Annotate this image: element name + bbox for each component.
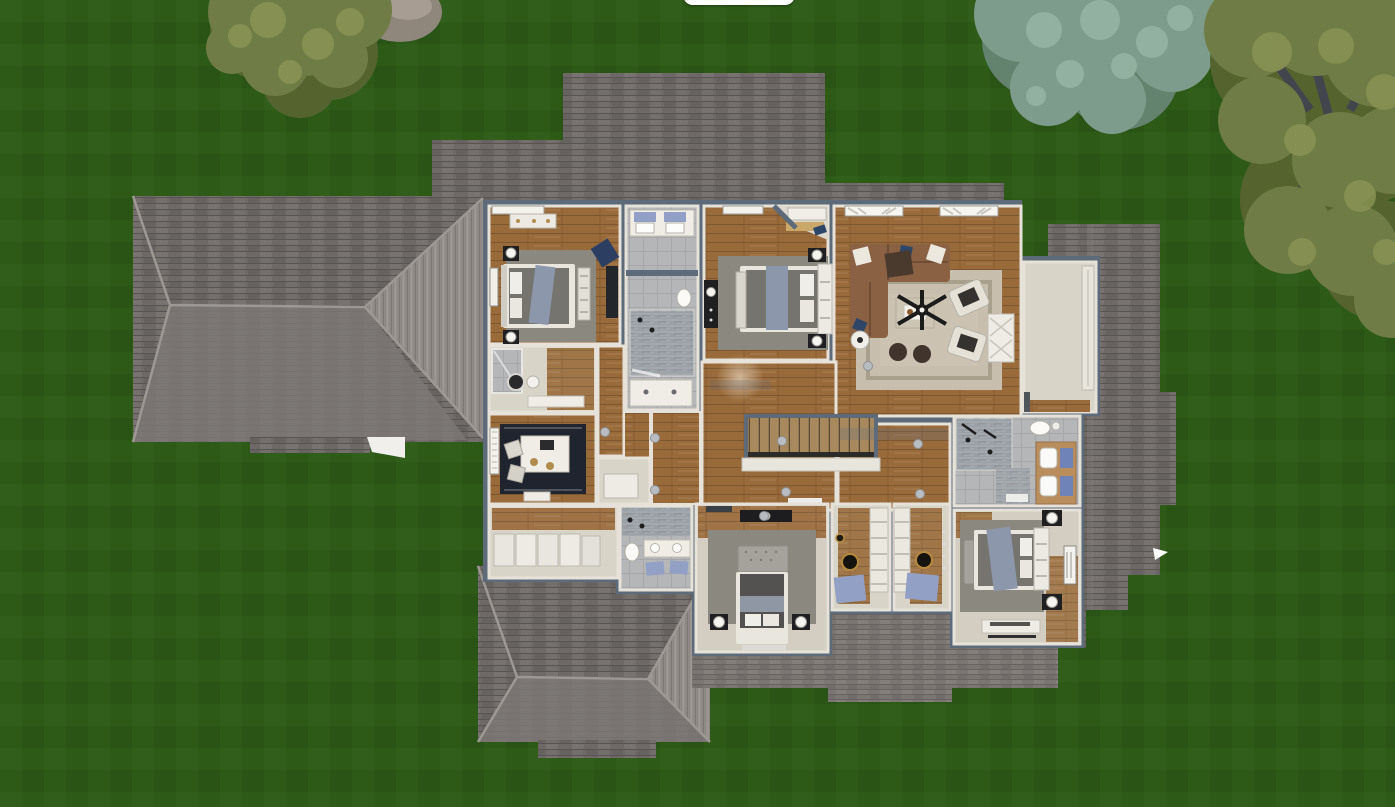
room-closet-b[interactable] bbox=[894, 504, 950, 610]
toilet[interactable] bbox=[677, 289, 691, 307]
ceiling-light bbox=[914, 440, 923, 449]
garage-roof-bump bbox=[538, 740, 656, 758]
throw-blanket bbox=[766, 266, 788, 330]
wall-art[interactable] bbox=[490, 268, 498, 306]
window-blinds bbox=[723, 206, 763, 214]
ceiling-light bbox=[778, 437, 787, 446]
hall-nook[interactable] bbox=[624, 412, 650, 458]
second-vanity[interactable] bbox=[630, 380, 692, 406]
room-living[interactable] bbox=[834, 206, 1021, 416]
dark-lid-toilet[interactable] bbox=[508, 374, 524, 390]
vanity[interactable] bbox=[528, 396, 584, 407]
storage-headboard bbox=[1034, 528, 1049, 590]
blue-towel bbox=[1060, 476, 1073, 496]
toilet[interactable] bbox=[1030, 421, 1050, 435]
brass-lamp bbox=[530, 458, 538, 466]
pillow bbox=[510, 298, 522, 318]
sink bbox=[1040, 476, 1057, 496]
brass-lamp bbox=[546, 462, 554, 470]
ceiling-light bbox=[916, 490, 925, 499]
room-bedroom-3[interactable] bbox=[696, 504, 828, 652]
room-office[interactable] bbox=[489, 414, 596, 504]
sink bbox=[673, 544, 682, 553]
desk[interactable] bbox=[606, 266, 618, 318]
shower[interactable] bbox=[622, 508, 690, 536]
ball-lamp bbox=[707, 288, 716, 297]
blue-bath-mat bbox=[646, 561, 665, 576]
pillow bbox=[1020, 538, 1032, 556]
stair-shadow bbox=[748, 452, 874, 457]
room-bathroom-2[interactable] bbox=[954, 416, 1080, 506]
blue-towel bbox=[664, 212, 686, 222]
white-runner bbox=[742, 645, 786, 650]
garage-hip-roof[interactable] bbox=[478, 566, 710, 758]
ottoman[interactable] bbox=[913, 345, 931, 363]
door-opening bbox=[706, 506, 732, 512]
sink bbox=[666, 223, 684, 233]
room-laundry[interactable] bbox=[489, 506, 618, 578]
front-door[interactable] bbox=[1024, 392, 1030, 412]
flat-roof-under-bedroom-3[interactable] bbox=[692, 652, 832, 688]
door-mat bbox=[1006, 494, 1028, 502]
room-entry[interactable] bbox=[1024, 262, 1096, 412]
dresser[interactable] bbox=[982, 620, 1040, 633]
left-hip-roof[interactable] bbox=[133, 196, 483, 458]
headboard bbox=[740, 632, 784, 641]
vase bbox=[1052, 422, 1060, 430]
top-roof-main[interactable] bbox=[563, 73, 825, 200]
ball-lamp bbox=[796, 617, 807, 628]
flat-roof-under-bedroom-4[interactable] bbox=[950, 644, 1058, 688]
ball-lamp bbox=[506, 248, 516, 258]
scene-canvas[interactable] bbox=[0, 0, 1395, 807]
left-roof-bump bbox=[250, 437, 370, 453]
monitor bbox=[540, 440, 554, 450]
console-table[interactable] bbox=[988, 314, 1014, 362]
tufted-bench bbox=[964, 540, 974, 584]
sink bbox=[636, 223, 654, 233]
storage-headboard bbox=[818, 264, 832, 334]
bed[interactable] bbox=[736, 546, 788, 644]
floor-light-glow bbox=[716, 354, 764, 402]
wall-art[interactable] bbox=[1064, 546, 1076, 584]
chair[interactable] bbox=[507, 465, 525, 483]
headboard bbox=[501, 265, 507, 327]
partition-wall bbox=[626, 270, 698, 276]
closet-shelf[interactable] bbox=[788, 208, 826, 220]
window-blinds bbox=[490, 428, 499, 474]
staircase[interactable] bbox=[742, 414, 880, 471]
ceiling-light bbox=[651, 486, 660, 495]
floating-toolbar[interactable] bbox=[683, 0, 795, 5]
ball-lamp bbox=[812, 250, 822, 260]
curtained-window bbox=[845, 206, 903, 216]
ottoman[interactable] bbox=[889, 343, 907, 361]
blue-bath-mat bbox=[834, 575, 867, 604]
window-blinds bbox=[492, 206, 544, 214]
pendant-light bbox=[916, 552, 932, 568]
ball-lamp bbox=[812, 336, 822, 346]
bed[interactable] bbox=[736, 264, 832, 334]
room-hall-closet[interactable] bbox=[598, 458, 650, 504]
storage-chest[interactable] bbox=[604, 474, 638, 498]
ceiling-light bbox=[760, 512, 769, 521]
pillow bbox=[800, 300, 814, 322]
toilet[interactable] bbox=[625, 543, 639, 561]
curtained-window bbox=[940, 206, 998, 216]
pendant-light bbox=[842, 554, 858, 570]
ceiling-light bbox=[782, 488, 791, 497]
ceiling-light bbox=[651, 434, 660, 443]
blue-towel bbox=[634, 212, 656, 222]
room-lower-bath[interactable] bbox=[620, 506, 692, 590]
room-bedroom-2[interactable] bbox=[704, 206, 832, 360]
design-viewport[interactable] bbox=[0, 0, 1395, 807]
blue-towel bbox=[1060, 448, 1073, 468]
stair-surround bbox=[742, 458, 880, 471]
ceiling-light bbox=[601, 428, 610, 437]
ball-lamp bbox=[1047, 597, 1058, 608]
sink bbox=[1040, 448, 1057, 468]
side-table[interactable] bbox=[524, 492, 550, 501]
room-ensuite-bath[interactable] bbox=[489, 346, 596, 412]
ball-lamp bbox=[714, 617, 725, 628]
pillow bbox=[763, 614, 779, 626]
blue-bath-mat bbox=[670, 560, 689, 574]
shelving[interactable] bbox=[870, 508, 888, 592]
hall-left[interactable] bbox=[598, 346, 624, 456]
cabinet-row[interactable] bbox=[494, 534, 600, 566]
ball-lamp bbox=[1047, 513, 1058, 524]
pedestal-sink[interactable] bbox=[527, 376, 539, 388]
dark-throw bbox=[884, 250, 913, 277]
room-closet-a[interactable] bbox=[832, 504, 890, 610]
room-bedroom-4[interactable] bbox=[954, 510, 1080, 644]
top-roof-left[interactable] bbox=[432, 140, 563, 200]
double-vanity[interactable] bbox=[1036, 442, 1076, 504]
room-bedroom-1[interactable] bbox=[489, 206, 620, 344]
ball-lamp bbox=[506, 332, 516, 342]
pillow bbox=[1020, 560, 1032, 578]
tufted-bench bbox=[738, 546, 788, 572]
bed[interactable] bbox=[501, 264, 575, 328]
bed[interactable] bbox=[964, 527, 1049, 591]
room-hall-bath[interactable] bbox=[626, 206, 698, 410]
ceiling-light bbox=[864, 362, 873, 371]
stair-railing bbox=[744, 414, 878, 418]
sink bbox=[651, 544, 660, 553]
pillow bbox=[510, 272, 522, 294]
flat-roof-under-closets[interactable] bbox=[828, 610, 952, 702]
pillow bbox=[745, 614, 761, 626]
slat-bench bbox=[736, 272, 746, 328]
blanket-band bbox=[740, 596, 784, 612]
blue-bath-mat bbox=[905, 573, 939, 602]
pillow bbox=[800, 274, 814, 296]
